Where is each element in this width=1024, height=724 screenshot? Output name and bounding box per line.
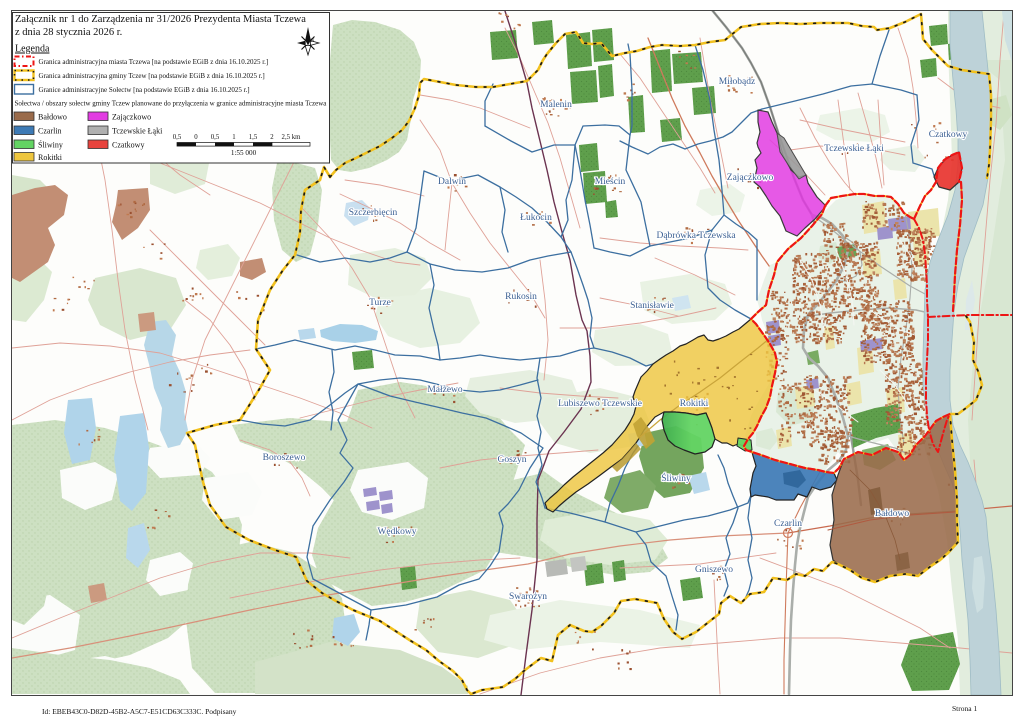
svg-text:2: 2 bbox=[270, 134, 274, 141]
svg-text:Stanisławie: Stanisławie bbox=[630, 301, 674, 311]
svg-text:Czatkowy: Czatkowy bbox=[112, 141, 144, 150]
svg-text:Rukosin: Rukosin bbox=[505, 292, 537, 302]
svg-text:Rokitki: Rokitki bbox=[38, 153, 63, 162]
svg-text:1: 1 bbox=[232, 134, 235, 141]
svg-text:Bałdowo: Bałdowo bbox=[875, 509, 910, 519]
svg-text:Małżewo: Małżewo bbox=[427, 385, 463, 395]
svg-text:Śliwiny: Śliwiny bbox=[661, 472, 691, 484]
svg-text:Łukocin: Łukocin bbox=[520, 213, 552, 223]
svg-text:0,5: 0,5 bbox=[173, 134, 182, 141]
svg-text:Tczewskie Łąki: Tczewskie Łąki bbox=[112, 127, 163, 136]
svg-text:Zajączkowo: Zajączkowo bbox=[727, 173, 774, 183]
svg-text:Granice administracyjne Sołect: Granice administracyjne Sołectw [na pods… bbox=[39, 86, 250, 94]
svg-text:N: N bbox=[311, 39, 315, 44]
svg-text:Malenin: Malenin bbox=[540, 100, 572, 110]
svg-text:Czarlin: Czarlin bbox=[774, 519, 802, 529]
svg-text:Tczewskie Łąki: Tczewskie Łąki bbox=[824, 144, 884, 154]
svg-text:Załącznik nr 1 do Zarządzenia: Załącznik nr 1 do Zarządzenia nr 31/2026… bbox=[15, 14, 306, 25]
svg-text:Czatkowy: Czatkowy bbox=[929, 130, 968, 140]
svg-text:1:55 000: 1:55 000 bbox=[231, 149, 257, 157]
svg-text:2,5 km: 2,5 km bbox=[282, 134, 302, 141]
svg-text:Granica administracyjna miasta: Granica administracyjna miasta Tczewa [n… bbox=[39, 58, 269, 66]
svg-text:Legenda: Legenda bbox=[15, 44, 50, 55]
svg-text:Miłobądz: Miłobądz bbox=[719, 77, 755, 87]
svg-text:Sołectwa / obszary sołectw gmi: Sołectwa / obszary sołectw gminy Tczew p… bbox=[15, 100, 328, 108]
svg-text:Rokitki: Rokitki bbox=[680, 399, 709, 409]
svg-text:Swarożyn: Swarożyn bbox=[509, 592, 547, 602]
svg-text:Dąbrówka Tczewska: Dąbrówka Tczewska bbox=[656, 231, 736, 241]
svg-text:Bałdowo: Bałdowo bbox=[38, 113, 67, 122]
svg-text:Zajączkowo: Zajączkowo bbox=[112, 113, 151, 122]
svg-text:Strona 1: Strona 1 bbox=[952, 704, 977, 713]
svg-text:Śliwiny: Śliwiny bbox=[38, 140, 63, 150]
svg-text:Mieścin: Mieścin bbox=[595, 177, 626, 187]
svg-text:Turze: Turze bbox=[369, 298, 391, 308]
svg-text:Szczerbięcin: Szczerbięcin bbox=[349, 208, 398, 218]
svg-text:Goszyn: Goszyn bbox=[497, 455, 526, 465]
svg-text:Dalwin: Dalwin bbox=[438, 177, 466, 187]
svg-text:0,5: 0,5 bbox=[211, 134, 220, 141]
svg-text:Lubiszewo Tczewskie: Lubiszewo Tczewskie bbox=[558, 399, 642, 409]
svg-text:Czarlin: Czarlin bbox=[38, 127, 62, 136]
svg-text:0: 0 bbox=[194, 134, 198, 141]
svg-text:Granica administracyjna gminy: Granica administracyjna gminy Tczew [na … bbox=[39, 72, 265, 80]
svg-text:Boroszewo: Boroszewo bbox=[263, 453, 306, 463]
svg-text:Wędkowy: Wędkowy bbox=[377, 527, 416, 537]
svg-text:Gniszewo: Gniszewo bbox=[695, 565, 733, 575]
svg-text:1,5: 1,5 bbox=[249, 134, 258, 141]
svg-text:Id: EBEB43C0-D82D-45B2-A5C7-E5: Id: EBEB43C0-D82D-45B2-A5C7-E51CD63C333C… bbox=[42, 707, 237, 716]
svg-text:z dnia 28 stycznia 2026 r.: z dnia 28 stycznia 2026 r. bbox=[15, 27, 122, 38]
